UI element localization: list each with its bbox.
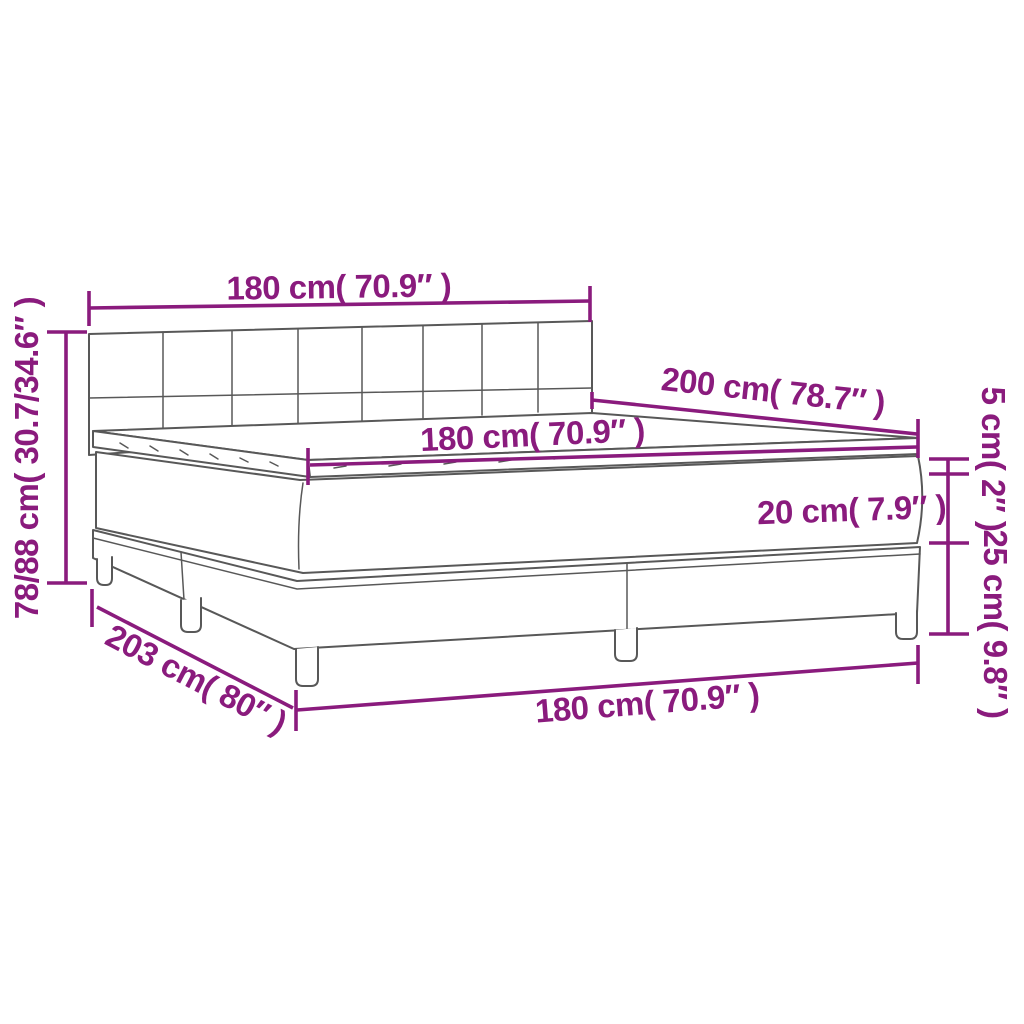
- bed-dimension-diagram: 180 cm( 70.9″ ) 78/88 cm( 30.7/34.6″ ) 2…: [0, 0, 1024, 1024]
- leg-back-left: [97, 557, 112, 585]
- dim-label-base-width: 180 cm( 70.9″ ): [534, 675, 761, 729]
- dim-label-headboard-width: 180 cm( 70.9″ ): [226, 266, 451, 306]
- dim-base-width: 180 cm( 70.9″ ): [296, 645, 918, 731]
- dim-label-base-height: 25 cm( 9.8″ ): [977, 529, 1014, 718]
- leg-front-mid: [615, 628, 637, 661]
- dim-label-height: 78/88 cm( 30.7/34.6″ ): [8, 297, 45, 619]
- dim-headboard-width: 180 cm( 70.9″ ): [89, 266, 590, 326]
- dim-height: 78/88 cm( 30.7/34.6″ ): [8, 297, 87, 619]
- leg-front-left: [296, 647, 318, 686]
- leg-mid-left: [181, 598, 201, 632]
- dim-label-topper-thickness: 5 cm( 2″ ): [975, 387, 1012, 532]
- dim-label-mattress-thickness: 20 cm( 7.9″ ): [756, 488, 946, 532]
- diagram-canvas: 180 cm( 70.9″ ) 78/88 cm( 30.7/34.6″ ) 2…: [0, 0, 1024, 1024]
- leg-front-right: [896, 611, 917, 639]
